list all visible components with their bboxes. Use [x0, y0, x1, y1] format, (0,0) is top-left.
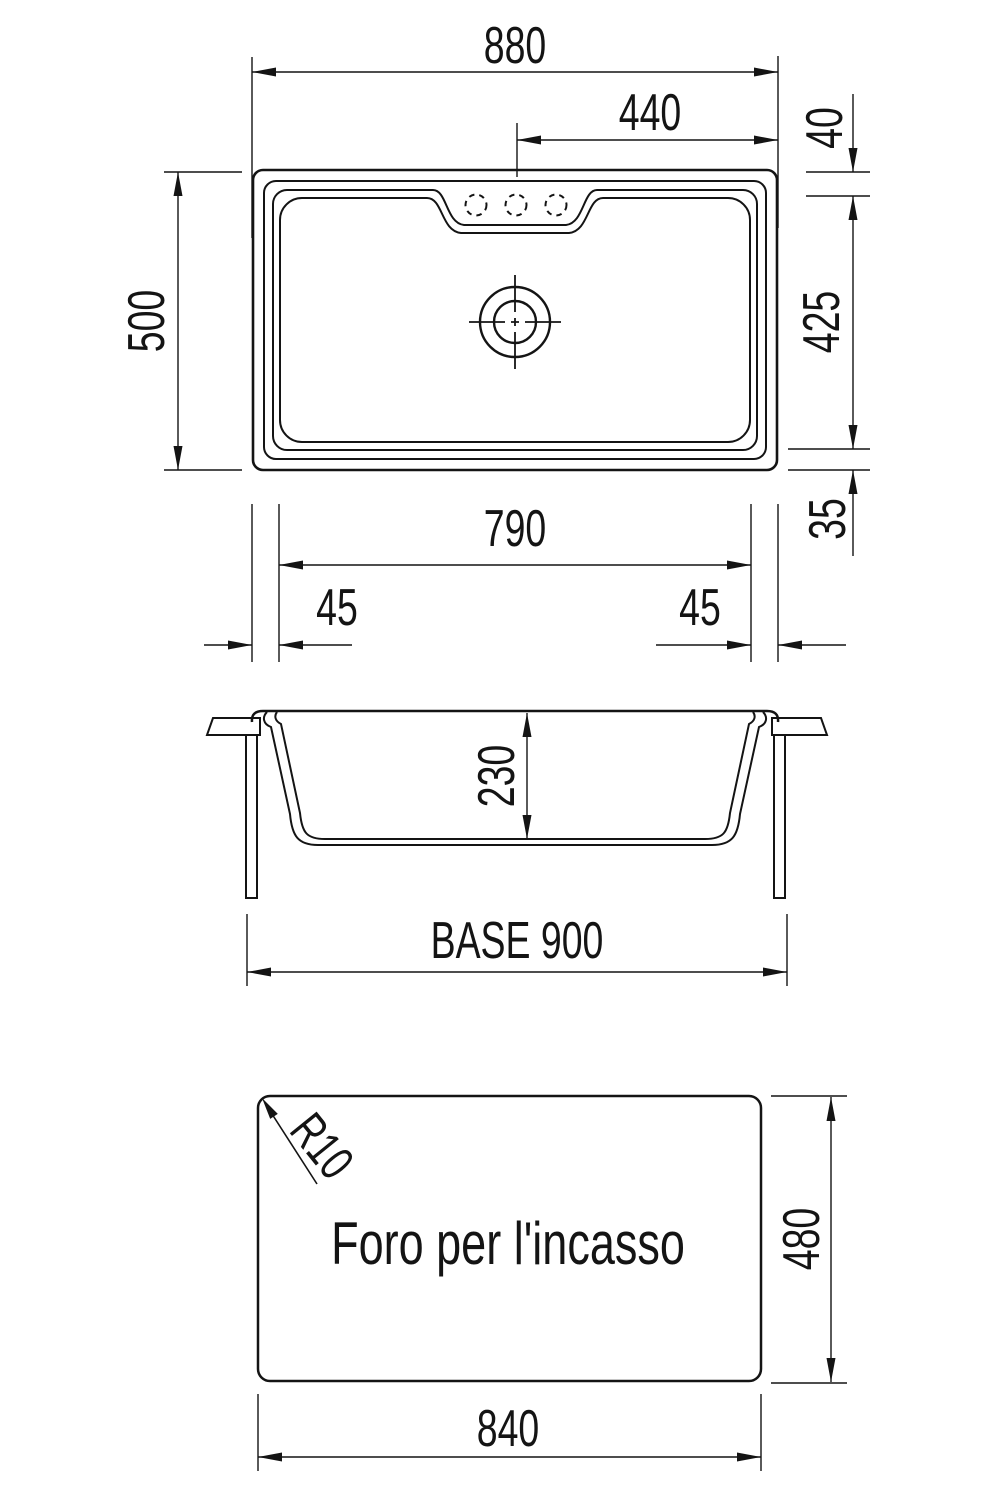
- label-bowl-to-bottom-edge: 35: [802, 498, 854, 540]
- label-edge-right: 45: [679, 582, 721, 634]
- label-cutout-height: 480: [776, 1208, 828, 1270]
- drain: [469, 275, 561, 369]
- label-cutout-title: Foro per l'incasso: [331, 1214, 685, 1274]
- faucet-hole-right: [546, 195, 567, 216]
- faucet-holes: [466, 195, 567, 216]
- dim-880: [252, 56, 778, 238]
- label-edge-left: 45: [316, 582, 358, 634]
- faucet-hole-center: [506, 195, 527, 216]
- cabinet-wall-right: [774, 735, 785, 898]
- top-view: [164, 56, 870, 662]
- countertop-right: [772, 718, 827, 735]
- rim-profile: [252, 711, 778, 722]
- label-bowl-width: 790: [484, 503, 546, 555]
- technical-drawing: 880 440 40 500 425 35 790 45 45 230 BASE…: [0, 0, 1000, 1500]
- label-depth-overall: 500: [121, 290, 173, 352]
- label-width-overall: 880: [484, 20, 546, 72]
- cabinet-wall-left: [246, 735, 257, 898]
- faucet-hole-left: [466, 195, 487, 216]
- label-rim-to-faucet-line: 40: [799, 107, 851, 149]
- label-width-center-to-edge: 440: [619, 87, 681, 139]
- label-cutout-width: 840: [477, 1403, 539, 1455]
- label-base-width: BASE 900: [431, 915, 604, 967]
- label-bowl-depth: 425: [796, 291, 848, 353]
- label-bowl-height: 230: [471, 745, 523, 807]
